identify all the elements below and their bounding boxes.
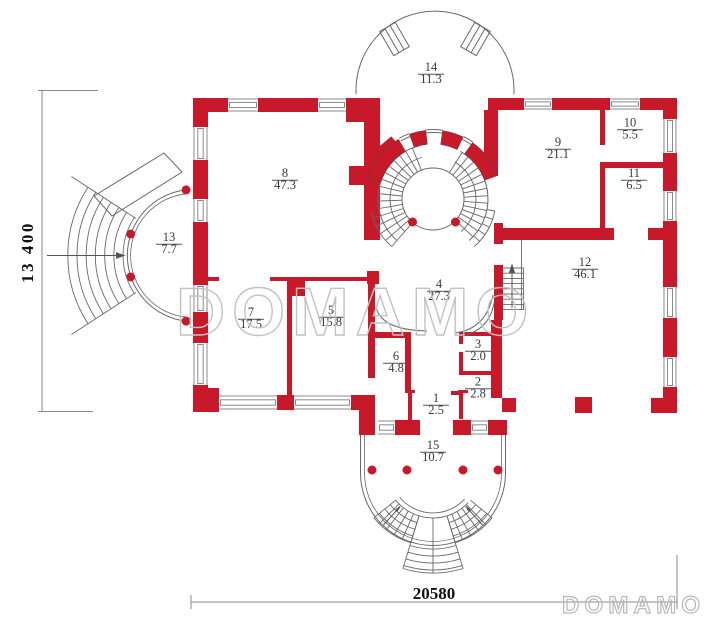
svg-text:5.5: 5.5 <box>622 127 638 141</box>
svg-text:DOMAMO: DOMAMO <box>562 592 705 619</box>
svg-text:13 400: 13 400 <box>18 221 37 283</box>
svg-text:2.5: 2.5 <box>428 403 444 417</box>
svg-text:47.3: 47.3 <box>274 178 296 192</box>
svg-text:21.1: 21.1 <box>547 147 569 161</box>
svg-text:10.7: 10.7 <box>422 450 444 464</box>
svg-text:2.8: 2.8 <box>470 386 486 400</box>
svg-text:DOMAMO: DOMAMO <box>176 274 535 350</box>
svg-text:11.3: 11.3 <box>420 72 441 86</box>
svg-text:46.1: 46.1 <box>574 267 596 281</box>
svg-text:4.8: 4.8 <box>388 361 404 375</box>
svg-text:6.5: 6.5 <box>626 178 642 192</box>
svg-text:2.0: 2.0 <box>470 349 486 363</box>
svg-text:7.7: 7.7 <box>161 242 177 256</box>
svg-text:20580: 20580 <box>413 584 456 603</box>
